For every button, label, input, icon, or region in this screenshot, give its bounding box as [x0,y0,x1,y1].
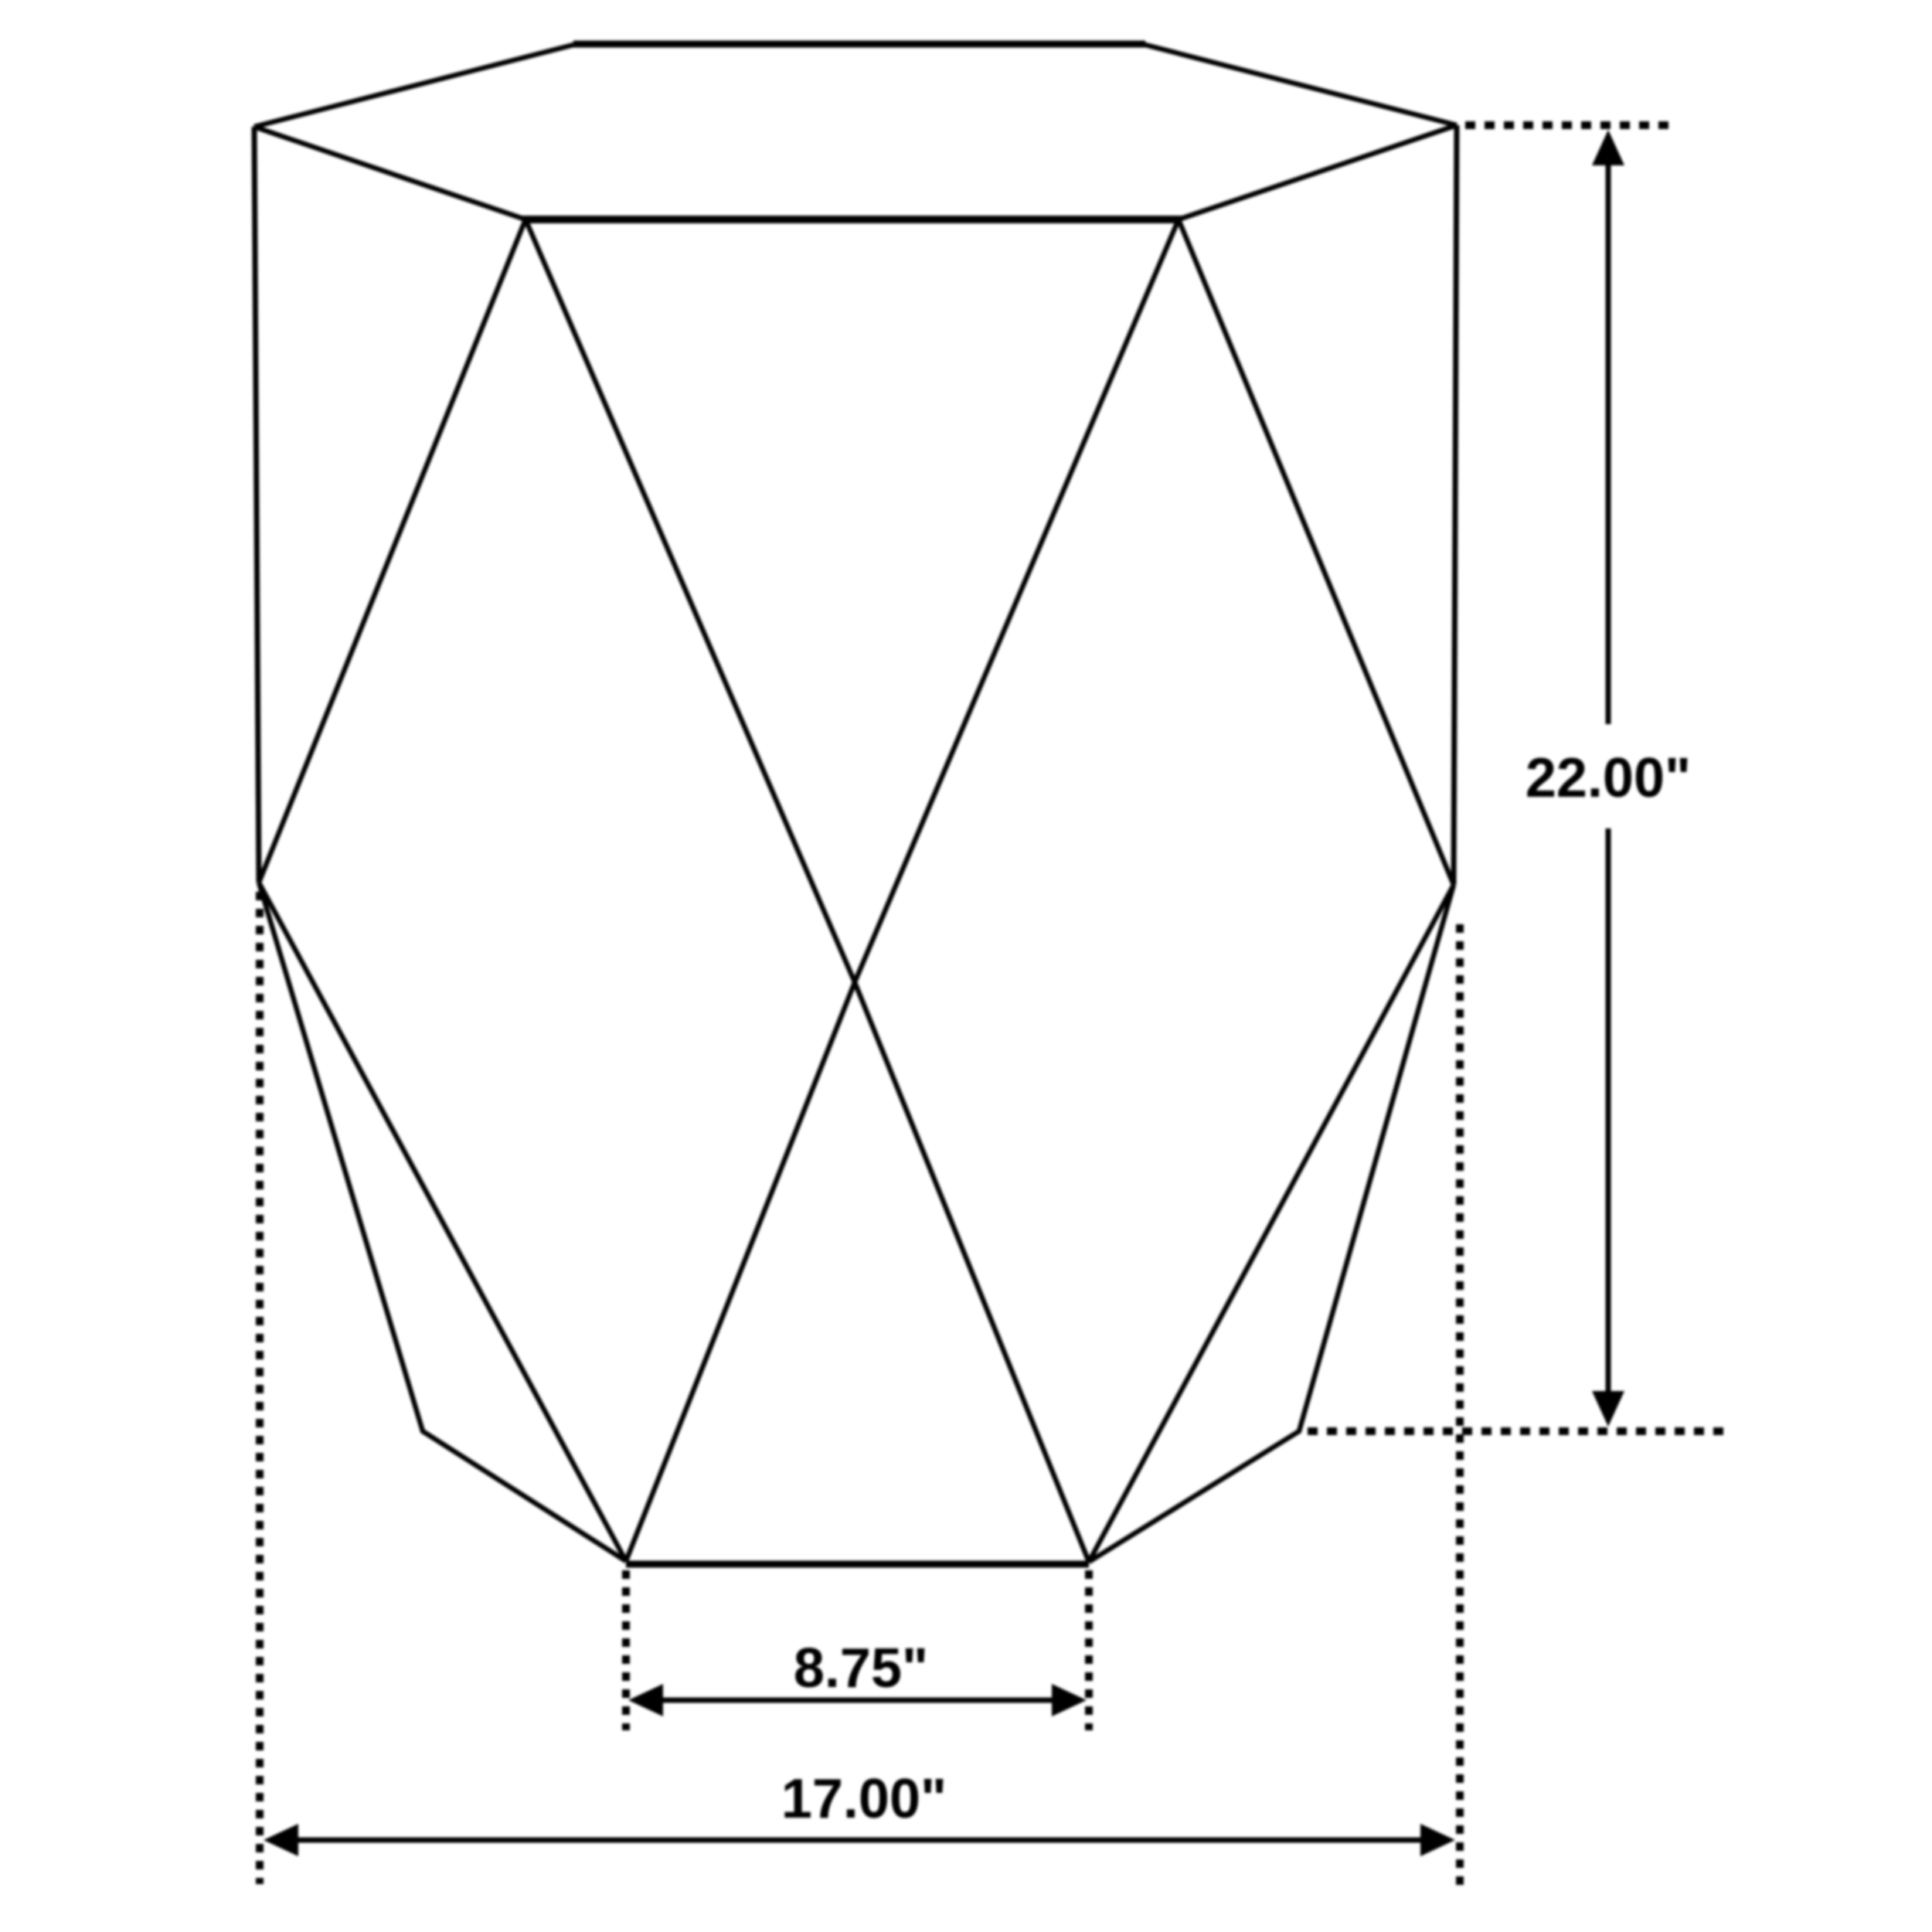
svg-text:8.75": 8.75" [794,1638,928,1699]
svg-text:22.00": 22.00" [1526,747,1691,809]
svg-text:17.00": 17.00" [781,1768,947,1830]
